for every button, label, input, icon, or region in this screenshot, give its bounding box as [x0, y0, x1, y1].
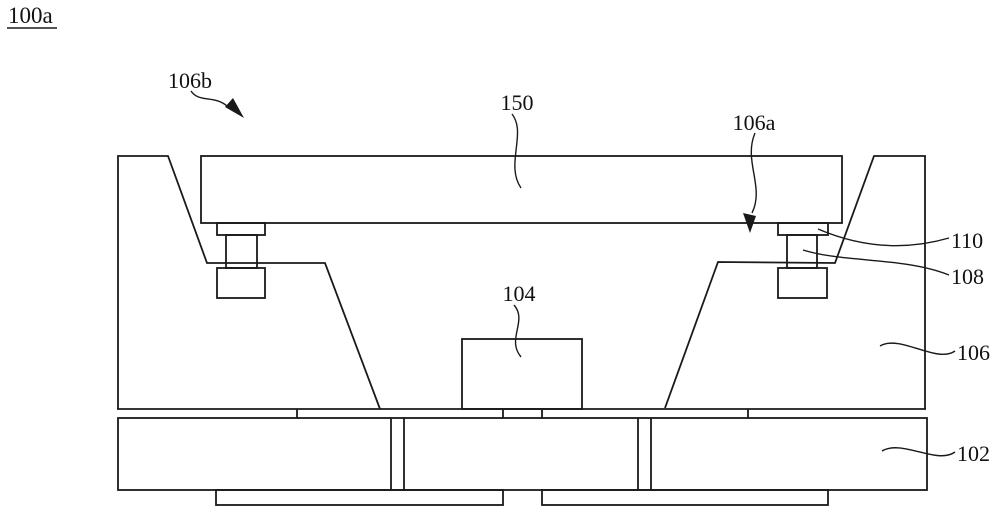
- callout-102: 102: [957, 441, 990, 466]
- leader-150: [512, 114, 521, 188]
- frame-right-outline: [665, 156, 925, 409]
- callout-106: 106: [957, 340, 990, 365]
- top-plate: [201, 156, 842, 223]
- leader-106b: [191, 91, 227, 106]
- bottom-pad-left: [216, 490, 503, 505]
- leader-106: [880, 343, 955, 354]
- leader-102: [882, 448, 955, 456]
- leader-110: [818, 229, 949, 246]
- figure-reference-label: 100a: [8, 3, 53, 28]
- frame-left-outline: [118, 156, 380, 409]
- right-bump-block: [778, 268, 827, 298]
- callout-108: 108: [951, 264, 984, 289]
- center-pedestal: [462, 339, 582, 409]
- cross-section-drawing: 100a 106b 150 106a 110 108 104 106 102: [0, 0, 1000, 511]
- callout-106b: 106b: [168, 68, 212, 93]
- left-bump-pad: [217, 223, 265, 235]
- callout-110: 110: [951, 228, 983, 253]
- callout-150: 150: [501, 90, 534, 115]
- leader-106a: [751, 133, 756, 213]
- leader-104: [514, 305, 521, 357]
- callout-106a: 106a: [733, 110, 776, 135]
- callout-104: 104: [503, 281, 536, 306]
- right-bump-pad: [778, 223, 828, 235]
- base-substrate: [118, 418, 927, 490]
- bottom-pad-right: [542, 490, 828, 505]
- left-bump-block: [217, 268, 265, 298]
- patent-figure-canvas: 100a 106b 150 106a 110 108 104 106 102: [0, 0, 1000, 511]
- arrowhead-106b-icon: [225, 98, 244, 118]
